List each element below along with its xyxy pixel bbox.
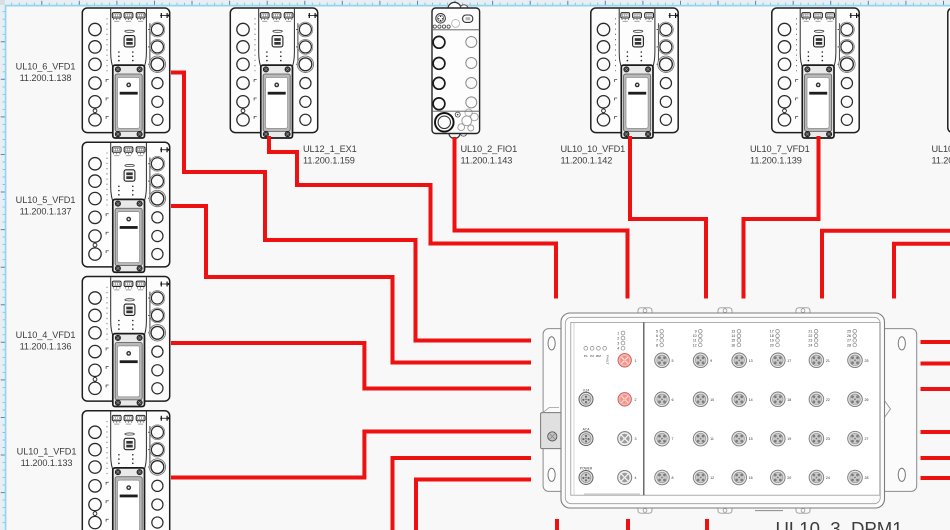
svg-text:17: 17 xyxy=(770,330,774,334)
svg-text:5: 5 xyxy=(656,330,658,334)
svg-text:16: 16 xyxy=(731,343,735,347)
svg-text:UL10_9_VFD1: UL10_9_VFD1 xyxy=(932,144,950,154)
svg-text:22: 22 xyxy=(826,398,830,402)
svg-text:UL10_7_VFD1: UL10_7_VFD1 xyxy=(750,144,810,154)
svg-text:12: 12 xyxy=(693,343,697,347)
svg-text:UL12_1_EX1: UL12_1_EX1 xyxy=(303,144,357,154)
svg-text:24: 24 xyxy=(808,343,812,347)
svg-text:11.200.1.143: 11.200.1.143 xyxy=(461,155,513,165)
svg-text:18: 18 xyxy=(787,398,791,402)
svg-text:19: 19 xyxy=(787,437,791,441)
svg-text:V.24: V.24 xyxy=(583,388,590,392)
svg-text:14: 14 xyxy=(749,398,753,402)
svg-text:UL10_5_VFD1: UL10_5_VFD1 xyxy=(16,195,76,205)
svg-text:10: 10 xyxy=(693,334,697,338)
svg-text:7: 7 xyxy=(656,339,658,343)
svg-text:3: 3 xyxy=(635,437,637,441)
svg-text:11: 11 xyxy=(710,437,714,441)
svg-text:18: 18 xyxy=(770,334,774,338)
svg-text:16: 16 xyxy=(749,476,753,480)
svg-text:10: 10 xyxy=(710,398,714,402)
svg-text:17: 17 xyxy=(787,359,791,363)
svg-text:25: 25 xyxy=(847,330,851,334)
svg-text:13: 13 xyxy=(731,330,735,334)
svg-text:27: 27 xyxy=(865,437,869,441)
svg-text:23: 23 xyxy=(808,339,812,343)
svg-text:14: 14 xyxy=(731,334,735,338)
svg-text:28: 28 xyxy=(865,476,869,480)
svg-text:11.200.1.159: 11.200.1.159 xyxy=(303,155,355,165)
svg-text:22: 22 xyxy=(808,334,812,338)
svg-text:20: 20 xyxy=(770,343,774,347)
svg-text:23: 23 xyxy=(826,437,830,441)
svg-text:20: 20 xyxy=(787,476,791,480)
svg-text:7: 7 xyxy=(672,437,674,441)
svg-text:RM: RM xyxy=(596,354,601,358)
svg-text:8: 8 xyxy=(656,343,658,347)
svg-text:25: 25 xyxy=(865,359,869,363)
svg-text:POWER: POWER xyxy=(580,467,593,471)
svg-text:15: 15 xyxy=(731,339,735,343)
svg-text:15: 15 xyxy=(749,437,753,441)
svg-text:11: 11 xyxy=(693,339,697,343)
svg-text:5: 5 xyxy=(672,359,674,363)
svg-text:11.200.1.138: 11.200.1.138 xyxy=(20,73,72,83)
svg-text:P2: P2 xyxy=(590,354,594,358)
svg-text:UL10_10_VFD1: UL10_10_VFD1 xyxy=(561,144,626,154)
svg-text:1: 1 xyxy=(635,359,637,363)
svg-text:11.200.1.136: 11.200.1.136 xyxy=(20,341,72,351)
svg-text:FAULT: FAULT xyxy=(605,355,609,365)
svg-text:UL10_6_VFD1: UL10_6_VFD1 xyxy=(16,62,76,72)
svg-text:8: 8 xyxy=(672,476,674,480)
svg-text:UL10_3_DPM1: UL10_3_DPM1 xyxy=(776,518,903,530)
svg-text:19: 19 xyxy=(770,339,774,343)
svg-text:24: 24 xyxy=(826,476,830,480)
svg-text:UL10_4_VFD1: UL10_4_VFD1 xyxy=(16,330,76,340)
svg-text:UL10_1_VFD1: UL10_1_VFD1 xyxy=(17,447,77,457)
svg-text:P1: P1 xyxy=(584,354,588,358)
svg-text:13: 13 xyxy=(749,359,753,363)
svg-text:11.200.1.142: 11.200.1.142 xyxy=(561,155,613,165)
svg-text:28: 28 xyxy=(847,343,851,347)
svg-text:4: 4 xyxy=(617,347,619,351)
svg-text:21: 21 xyxy=(826,359,830,363)
svg-text:2: 2 xyxy=(635,398,637,402)
svg-text:26: 26 xyxy=(865,398,869,402)
svg-text:2: 2 xyxy=(617,336,619,340)
svg-text:ACA: ACA xyxy=(583,428,591,432)
svg-text:11.200.1.137: 11.200.1.137 xyxy=(20,206,72,216)
svg-text:21: 21 xyxy=(808,330,812,334)
svg-text:26: 26 xyxy=(847,334,851,338)
svg-text:4: 4 xyxy=(635,476,637,480)
svg-text:6: 6 xyxy=(656,334,658,338)
svg-text:9: 9 xyxy=(695,330,697,334)
svg-text:1: 1 xyxy=(617,331,619,335)
svg-text:UL10_2_FIO1: UL10_2_FIO1 xyxy=(461,144,518,154)
svg-text:11.200.1.141: 11.200.1.141 xyxy=(932,155,950,165)
svg-text:6: 6 xyxy=(672,398,674,402)
svg-text:9: 9 xyxy=(710,359,712,363)
svg-text:11.200.1.139: 11.200.1.139 xyxy=(750,155,802,165)
svg-text:27: 27 xyxy=(847,339,851,343)
svg-text:11.200.1.133: 11.200.1.133 xyxy=(21,458,73,468)
svg-text:3: 3 xyxy=(617,341,619,345)
svg-text:12: 12 xyxy=(710,476,714,480)
